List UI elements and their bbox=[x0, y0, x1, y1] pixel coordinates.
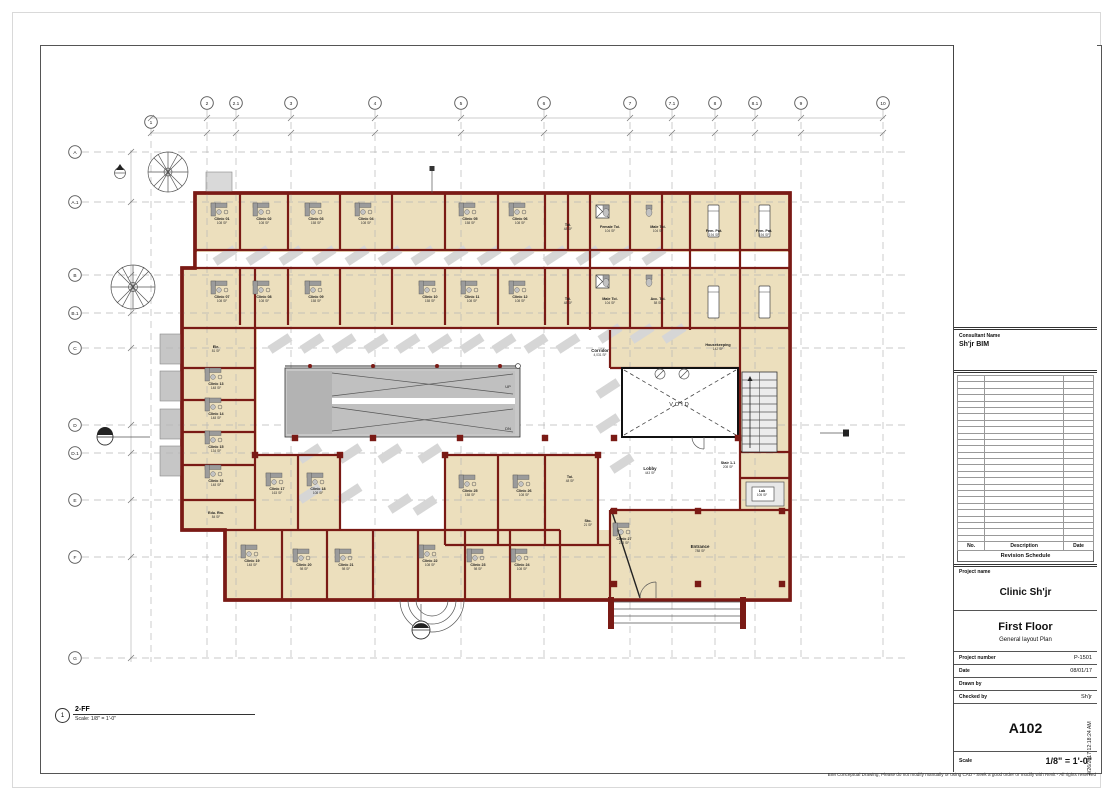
title-block-field: Date08/01/17 bbox=[954, 664, 1097, 677]
view-title: 1 2-FF Scale: 1/8" = 1'-0" bbox=[55, 706, 255, 723]
project-name: Clinic Sh'jr bbox=[954, 577, 1097, 610]
revision-caption: Revision Schedule bbox=[958, 551, 1094, 562]
revision-col-header: Description bbox=[985, 542, 1064, 551]
sheet-number: A102 bbox=[954, 703, 1097, 751]
scale-label: Scale bbox=[959, 758, 972, 764]
print-timestamp: 4/26/2017 12:18:24 AM bbox=[1087, 655, 1098, 775]
title-block-field: Project numberP-1501 bbox=[954, 651, 1097, 664]
scale-value: 1/8" = 1'-0" bbox=[1046, 756, 1092, 766]
title-block-fields: Project numberP-1501Date08/01/17Drawn by… bbox=[954, 651, 1097, 703]
consultant-label: Consultant Name bbox=[959, 333, 1092, 339]
consultant-name: Sh'jr BIM bbox=[959, 341, 1092, 348]
revision-col-header: No. bbox=[958, 542, 985, 551]
revision-schedule: No.DescriptionDateRevision Schedule bbox=[954, 370, 1097, 567]
view-number-bubble: 1 bbox=[55, 708, 70, 723]
sheet-subtitle: General layout Plan bbox=[954, 635, 1097, 651]
title-block-field: Drawn by bbox=[954, 677, 1097, 690]
sheet-border bbox=[40, 45, 1102, 774]
revision-col-header: Date bbox=[1064, 542, 1094, 551]
title-block-field: Checked bySh'jr bbox=[954, 690, 1097, 703]
view-name: 2-FF bbox=[73, 706, 255, 713]
sheet-name: First Floor bbox=[954, 610, 1097, 635]
consultant-box: Consultant Name Sh'jr BIM bbox=[954, 327, 1097, 370]
disclaimer-text: BIM Conceptual Drawing, Please do not mo… bbox=[540, 772, 1096, 777]
scale-row: Scale 1/8" = 1'-0" bbox=[954, 751, 1097, 772]
project-label: Project name bbox=[954, 567, 1097, 577]
drawing-sheet-page: 122.1345677.188.1910AA.1BB.1CDD.1EFG bbox=[0, 0, 1113, 800]
title-block: Consultant Name Sh'jr BIM No.Description… bbox=[953, 45, 1097, 772]
view-title-rule bbox=[73, 714, 255, 715]
view-scale: Scale: 1/8" = 1'-0" bbox=[73, 716, 255, 722]
